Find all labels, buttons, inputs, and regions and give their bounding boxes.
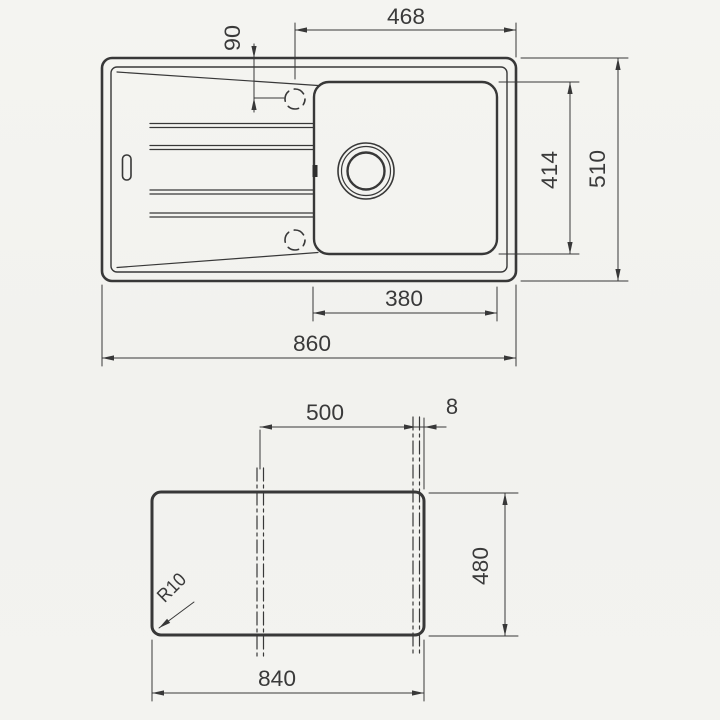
dim-label: 480 [468, 547, 493, 585]
spec-sheet: 468 90 414 510 380 [0, 0, 720, 720]
dim-label: 380 [385, 286, 423, 311]
drain-inner-ring [348, 153, 385, 190]
sink-top-view [102, 58, 516, 281]
dim-label: 500 [306, 400, 344, 425]
drain [338, 143, 394, 199]
cutout-outline [152, 492, 424, 635]
dim-8: 8 [416, 394, 458, 489]
faucet-hole-bottom [285, 230, 305, 250]
dim-380: 380 [313, 286, 497, 321]
dim-468: 468 [295, 4, 516, 79]
dim-500: 500 [260, 400, 416, 469]
sink-outline [102, 58, 516, 281]
dim-label: 510 [585, 150, 610, 188]
dim-r10: R10 [153, 569, 194, 628]
bowl-edge-mark [313, 165, 318, 177]
taper-line-top [117, 72, 318, 86]
dim-label: 414 [537, 151, 562, 189]
cutout-view: 500 8 480 840 R10 [152, 394, 518, 701]
taper-line-bottom [117, 253, 318, 268]
dim-label: 468 [387, 4, 425, 29]
overflow-slot [123, 155, 132, 180]
dim-414: 414 [499, 82, 579, 254]
dim-label: 860 [293, 331, 331, 356]
sink-rim [111, 67, 507, 272]
dim-label: R10 [153, 569, 190, 606]
dim-90: 90 [220, 25, 284, 112]
drainboard-grooves [150, 124, 314, 218]
drain-middle-ring [342, 147, 391, 196]
dim-480: 480 [429, 493, 518, 636]
dim-label: 90 [220, 25, 245, 51]
dim-label: 8 [446, 394, 458, 419]
dim-860: 860 [102, 285, 516, 366]
dim-label: 840 [258, 666, 296, 691]
sink-technical-drawing: 468 90 414 510 380 [0, 0, 720, 720]
faucet-hole-top [285, 89, 305, 109]
leader-line [159, 602, 194, 628]
dim-840: 840 [152, 640, 424, 701]
